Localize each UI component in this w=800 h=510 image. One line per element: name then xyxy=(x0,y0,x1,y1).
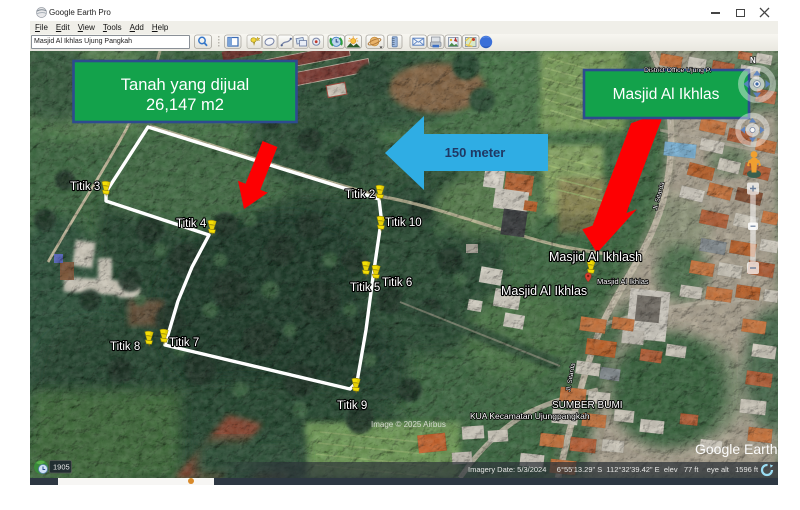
svg-text:26,147 m2: 26,147 m2 xyxy=(146,96,224,114)
svg-text:Masjid Al Ikhlas: Masjid Al Ikhlas xyxy=(613,86,720,103)
svg-text:District Office Ujung P.: District Office Ujung P. xyxy=(644,67,711,74)
svg-text:KUA Kecamatan Ujungpangkah: KUA Kecamatan Ujungpangkah xyxy=(470,411,590,421)
svg-text:150 meter: 150 meter xyxy=(445,145,506,160)
svg-text:Masjid Al Ikhlas: Masjid Al Ikhlas xyxy=(597,277,649,286)
svg-text:Tanah yang dijual: Tanah yang dijual xyxy=(121,76,249,94)
svg-text:Masjid Al Ikhlas: Masjid Al Ikhlas xyxy=(501,284,587,298)
svg-text:Titik 8: Titik 8 xyxy=(110,341,140,353)
svg-text:N: N xyxy=(750,56,756,65)
svg-text:1905: 1905 xyxy=(53,463,70,472)
svg-text:Titik 7: Titik 7 xyxy=(169,337,199,349)
svg-text:Titik 10: Titik 10 xyxy=(385,217,422,229)
svg-text:Titik 5: Titik 5 xyxy=(350,282,380,294)
svg-text:Titik 3: Titik 3 xyxy=(70,181,100,193)
svg-text:Google Earth: Google Earth xyxy=(695,441,778,457)
svg-text:Masjid Al Ikhlash: Masjid Al Ikhlash xyxy=(549,250,642,264)
svg-text:Imagery Date: 5/3/2024 6°5: Imagery Date: 5/3/2024 6°55'13.29" S 112… xyxy=(468,465,759,474)
svg-text:Image © 2025 Airbus: Image © 2025 Airbus xyxy=(371,420,446,429)
svg-text:Titik 4: Titik 4 xyxy=(176,218,207,230)
svg-text:Titik 9: Titik 9 xyxy=(337,400,367,412)
svg-text:Titik 2: Titik 2 xyxy=(345,189,375,201)
svg-text:SUMBER BUMI: SUMBER BUMI xyxy=(552,400,623,411)
svg-text:Titik 6: Titik 6 xyxy=(382,277,412,289)
